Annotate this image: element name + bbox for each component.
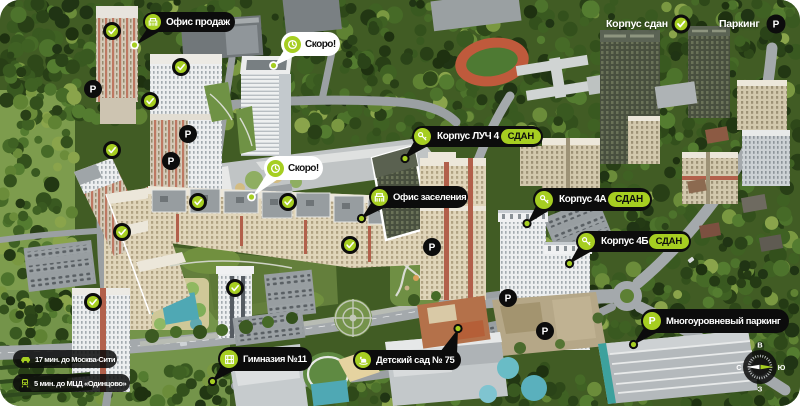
svg-text:Р: Р bbox=[90, 85, 97, 96]
svg-text:Р: Р bbox=[505, 294, 512, 305]
svg-text:Р: Р bbox=[429, 243, 436, 254]
svg-text:С: С bbox=[736, 363, 742, 372]
svg-text:Р: Р bbox=[542, 327, 549, 338]
svg-text:Р: Р bbox=[185, 130, 192, 141]
svg-text:В: В bbox=[757, 341, 763, 350]
svg-text:Ю: Ю bbox=[778, 363, 786, 372]
svg-text:З: З bbox=[758, 385, 763, 394]
svg-text:Р: Р bbox=[773, 20, 780, 31]
svg-text:Р: Р bbox=[168, 157, 175, 168]
